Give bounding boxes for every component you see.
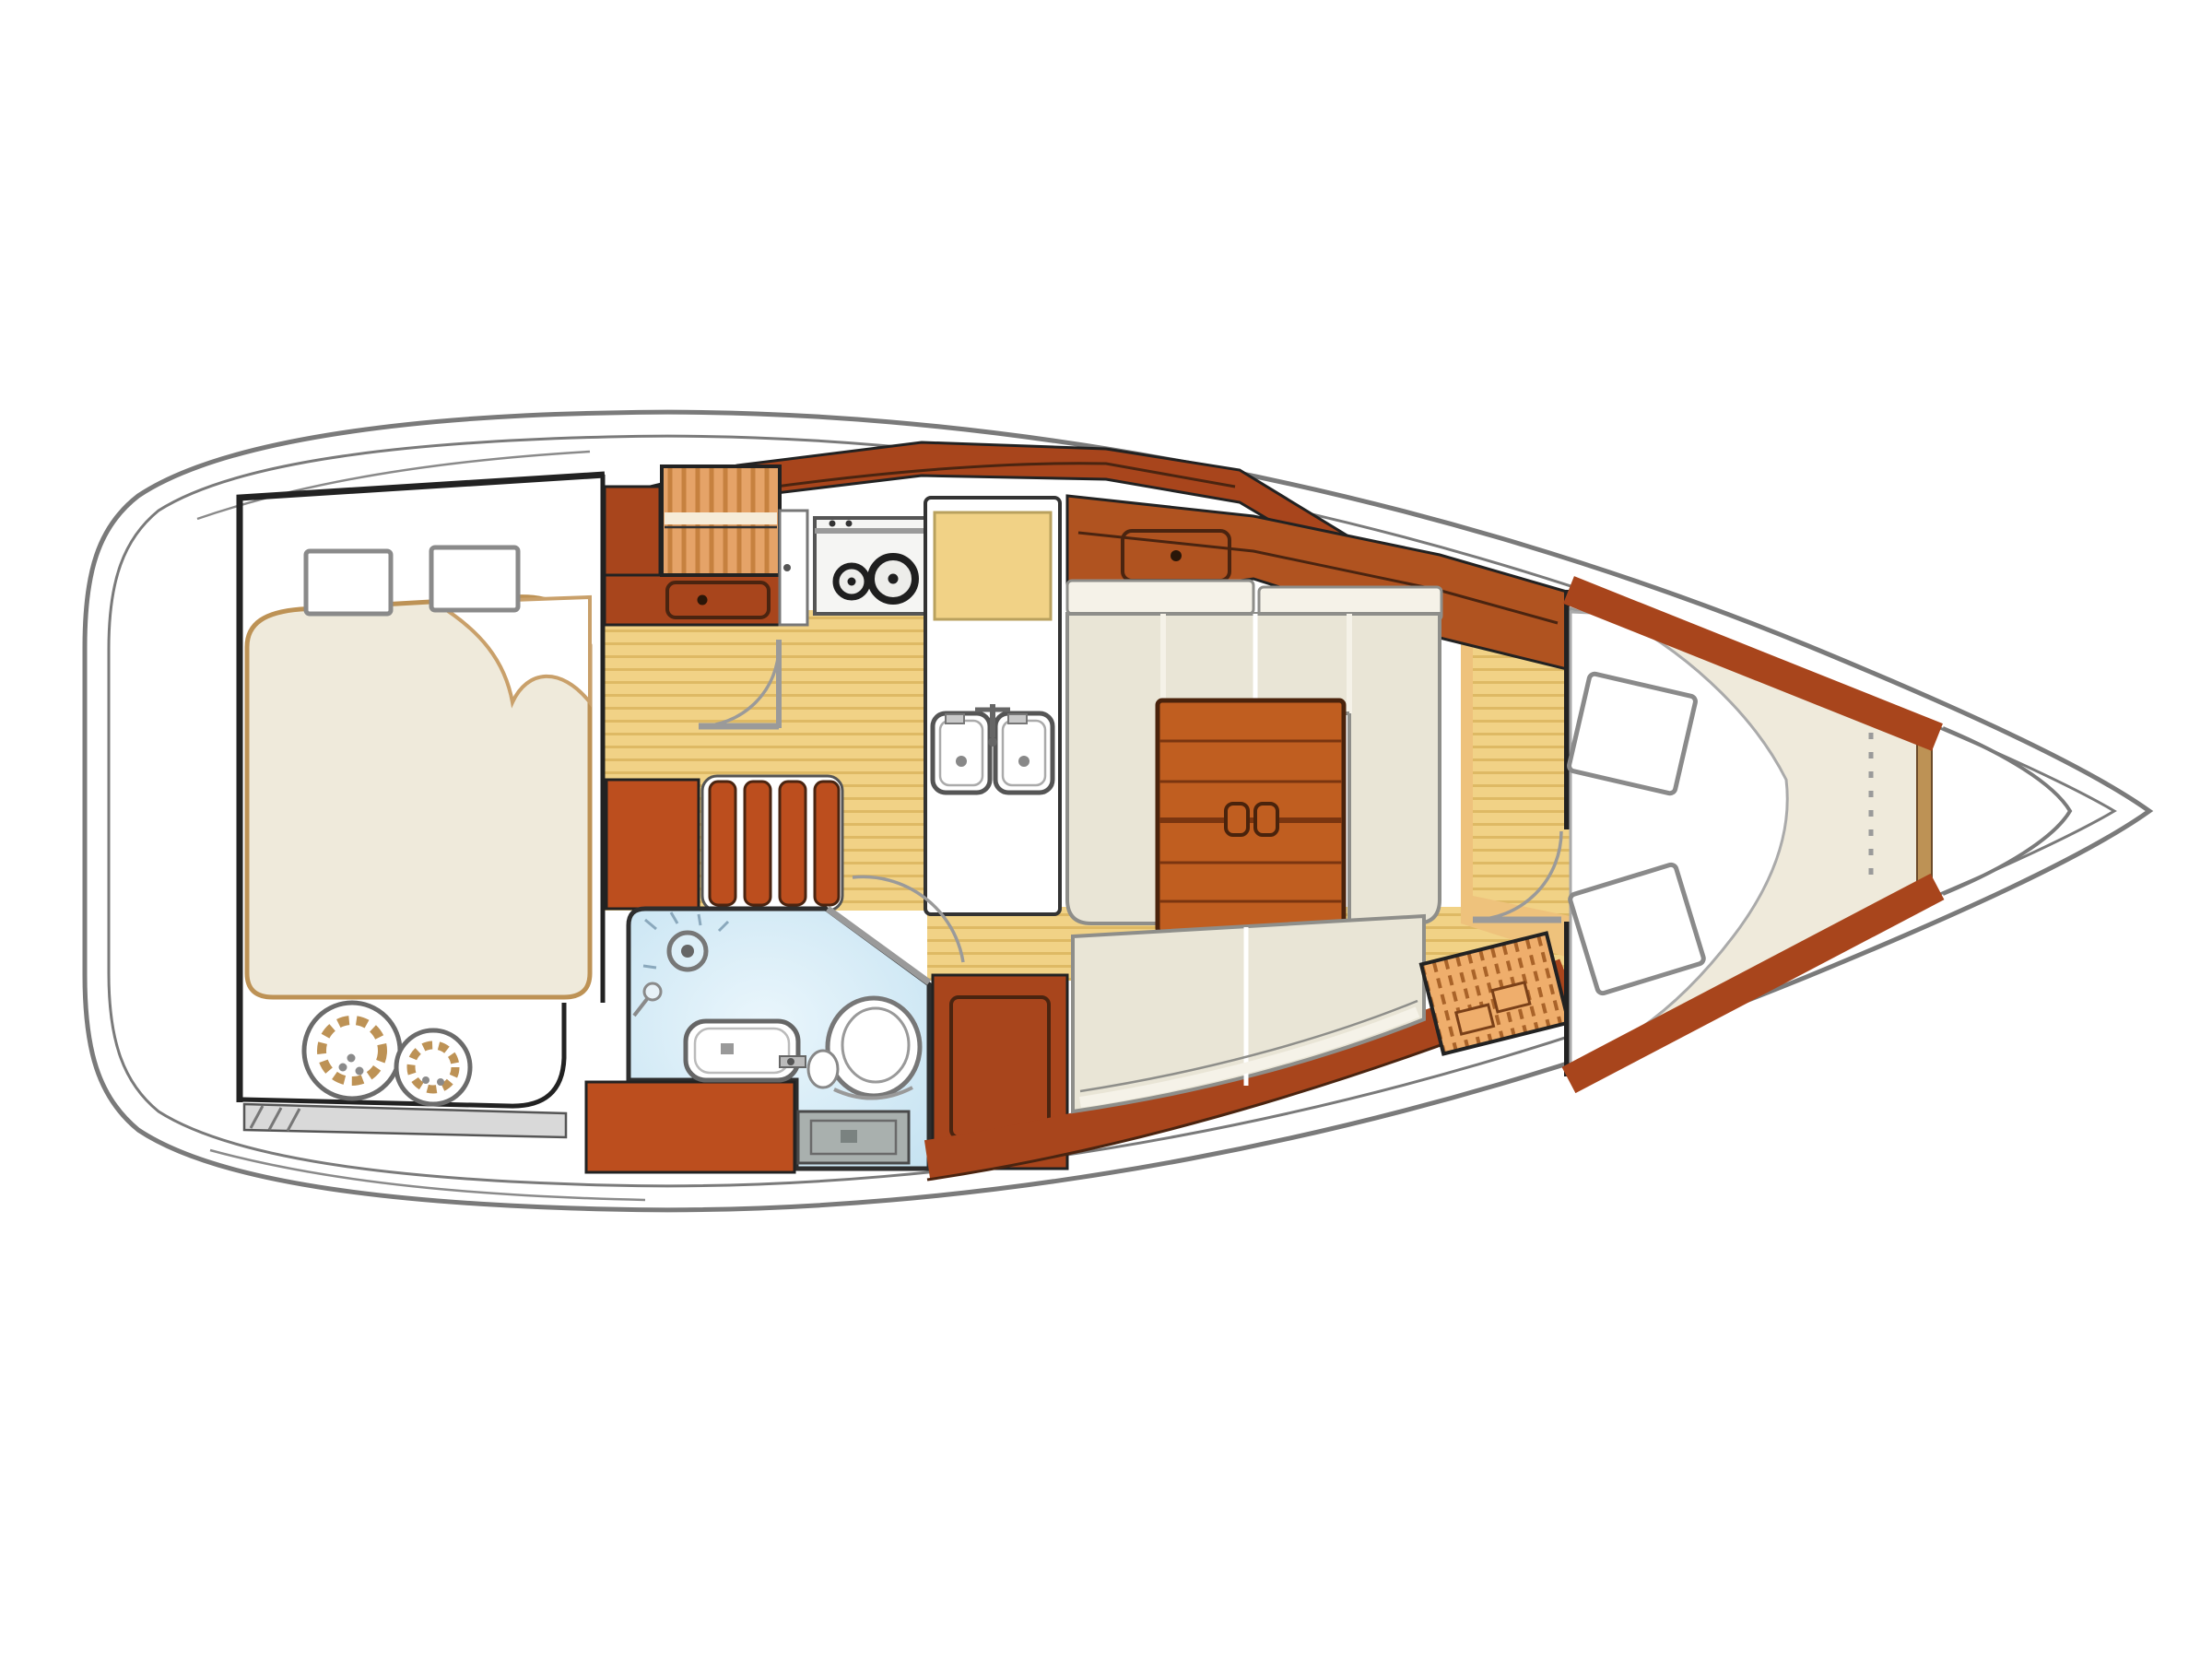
vanity-cabinet [586,1082,794,1172]
pillow [1568,673,1696,794]
table-handle [1226,804,1248,835]
rope-coil [304,1003,400,1099]
toilet-pump [808,1051,838,1088]
companionway-step-tread [665,512,777,524]
seat-slat [745,782,771,905]
table-handle [1255,804,1277,835]
v-berth-end-trim [1917,728,1932,890]
seat-slat [815,782,839,905]
drawer-knob [698,595,708,606]
pillow [431,547,518,610]
stove-knob [829,521,836,527]
faucet-base [988,737,997,747]
pillow [306,551,391,614]
worktop-inset [935,512,1051,619]
sink-drain [1018,756,1030,767]
basin-drain [721,1043,734,1054]
sink-tab [1008,714,1027,723]
yacht-floor-plan [0,0,2212,1658]
saloon-table [1158,700,1344,933]
settee-backrest [1067,581,1253,614]
head-storage-drawer [798,1111,909,1163]
seat-slat [780,782,806,905]
rope-coil [396,1030,470,1104]
stove [815,518,925,614]
stove-knob [846,521,853,527]
sink-drain [956,756,967,767]
slatted-seat [606,776,842,911]
floor-plan-canvas [0,0,2212,1658]
drawer-knob [1171,550,1182,561]
washbasin [686,1021,806,1080]
door-panel-knob [783,564,791,571]
seat-slat [710,782,735,905]
sink-tab [946,714,964,723]
seat-cabinet [606,780,699,909]
